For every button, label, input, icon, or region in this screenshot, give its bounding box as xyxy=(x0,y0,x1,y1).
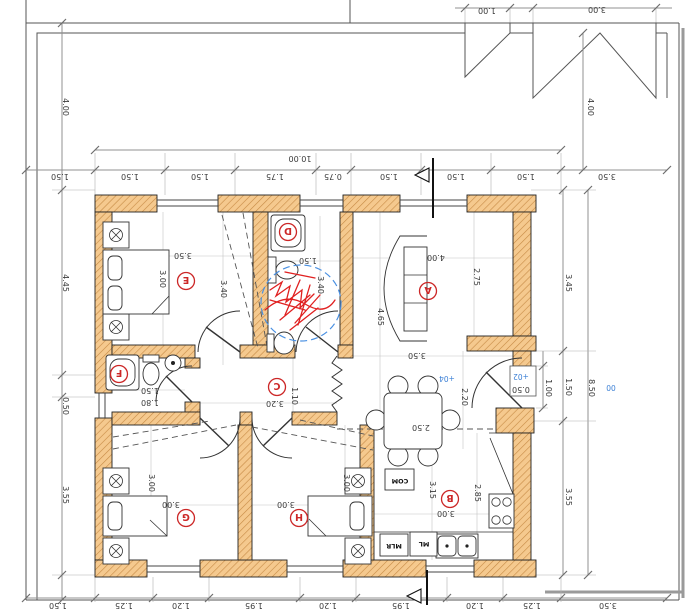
dim-right-yard: 4.00 xyxy=(586,98,595,116)
dim-F-b: 1.80 xyxy=(141,398,159,407)
dim-B-entry: 2.20 xyxy=(460,388,469,406)
dim-top-seg5: 1.50 xyxy=(447,172,465,181)
dim-left-seg0: 4.00 xyxy=(61,98,70,116)
dim-top-seg6: 1.50 xyxy=(517,172,535,181)
dining-table xyxy=(384,393,442,449)
label-ml: ML xyxy=(419,540,430,548)
label-mlr: MLR xyxy=(386,542,402,550)
dim-gate-pedestrian: 1.00 xyxy=(478,6,496,15)
dim-G-w: 3.00 xyxy=(162,500,180,509)
label-com: COM xyxy=(392,477,409,485)
toilet-F-tank xyxy=(143,355,159,362)
level-entry: +04 xyxy=(439,374,455,383)
room-label-A: A xyxy=(424,284,432,295)
dim-H-h: 3.00 xyxy=(342,474,351,492)
dim-bottom-seg1: 1.20 xyxy=(172,601,190,610)
dim-B-h2: 2.85 xyxy=(473,484,482,502)
dim-top-seg4: 1.50 xyxy=(380,172,398,181)
dim-left-seg1: 4.45 xyxy=(61,274,70,292)
dim-bottom-seg0: 1.25 xyxy=(115,601,133,610)
dim-overall-width: 10.00 xyxy=(289,154,312,163)
dim-overall-height: 8.50 xyxy=(587,379,596,397)
dim-A-w2: 3.50 xyxy=(408,351,426,360)
dim-gate-vehicle: 3.00 xyxy=(588,5,606,14)
toilet-D-bowl xyxy=(276,261,298,279)
dim-left-seg3: 3.55 xyxy=(61,486,70,504)
dim-top-seg1: 1.50 xyxy=(191,172,209,181)
dim-B-table: 2.50 xyxy=(412,423,430,432)
dim-top-outside-right: 3.50 xyxy=(598,172,616,181)
dim-bottom-outside-right: 3.50 xyxy=(599,601,617,610)
dim-top-seg3: 0.75 xyxy=(324,172,342,181)
gates xyxy=(465,22,656,98)
dim-bottom-seg3: 1.20 xyxy=(319,601,337,610)
room-label-G: G xyxy=(182,511,190,522)
dim-top-seg2: 1.75 xyxy=(266,172,284,181)
dim-A-len: 4.65 xyxy=(376,308,385,326)
dim-D-h: 3.40 xyxy=(316,276,325,294)
dim-threshold: 0.50 xyxy=(512,385,530,394)
dim-right-seg1: 1.50 xyxy=(564,378,573,396)
dim-left-seg2: 0.50 xyxy=(61,397,70,415)
dim-top-outside-left: 1.50 xyxy=(51,172,69,181)
room-label-D: D xyxy=(284,225,292,236)
dim-A-h: 2.75 xyxy=(472,268,481,286)
dim-bottom-seg4: 1.95 xyxy=(392,601,410,610)
floor-plan-screenshot: 1.50 1.50 1.50 1.75 0.75 1.50 1.50 1.50 … xyxy=(0,0,688,616)
dim-B-h: 3.15 xyxy=(428,481,437,499)
dim-bottom-seg6: 1.25 xyxy=(523,601,541,610)
dim-E-h: 3.40 xyxy=(219,280,228,298)
toilet-F-bowl xyxy=(143,363,159,385)
room-label-B: B xyxy=(446,492,453,503)
dim-C-w: 3.20 xyxy=(266,399,284,408)
dim-entry-door-width: 1.00 xyxy=(544,379,553,397)
dim-top-seg0: 1.50 xyxy=(121,172,139,181)
dim-bottom-seg2: 1.95 xyxy=(245,601,263,610)
dim-A-w: 4.00 xyxy=(427,253,445,262)
level-step: +02 xyxy=(513,372,529,381)
dim-right-seg2: 3.55 xyxy=(564,488,573,506)
room-label-E: E xyxy=(183,274,190,285)
vehicle-gate-symbol xyxy=(533,22,656,98)
dim-G-h: 3.00 xyxy=(147,474,156,492)
room-label-C: C xyxy=(273,380,280,391)
floor-plan-drawing: 1.50 1.50 1.50 1.75 0.75 1.50 1.50 1.50 … xyxy=(0,0,688,616)
dim-D-w: 1.50 xyxy=(299,256,317,265)
dim-C-h: 1.10 xyxy=(290,387,299,405)
level-outside: 00 xyxy=(606,383,616,392)
room-label-H: H xyxy=(295,511,303,522)
bidet-D xyxy=(274,332,294,354)
dim-E-w2: 3.00 xyxy=(158,270,167,288)
dim-F-a: 1.50 xyxy=(141,386,159,395)
room-label-F: F xyxy=(116,367,123,378)
road-edge-thick-line xyxy=(545,28,683,598)
pedestrian-gate-symbol xyxy=(465,22,510,77)
break-line-zigzag xyxy=(332,356,342,412)
dim-right-seg0: 3.45 xyxy=(564,274,573,292)
dim-bottom-seg5: 1.20 xyxy=(466,601,484,610)
dim-B-w: 3.00 xyxy=(437,509,455,518)
axis-triangle-bottom xyxy=(407,589,421,603)
dim-H-w: 3.00 xyxy=(277,500,295,509)
dim-E-w: 3.50 xyxy=(174,251,192,260)
dim-bottom-outside-left: 1.50 xyxy=(49,601,67,610)
